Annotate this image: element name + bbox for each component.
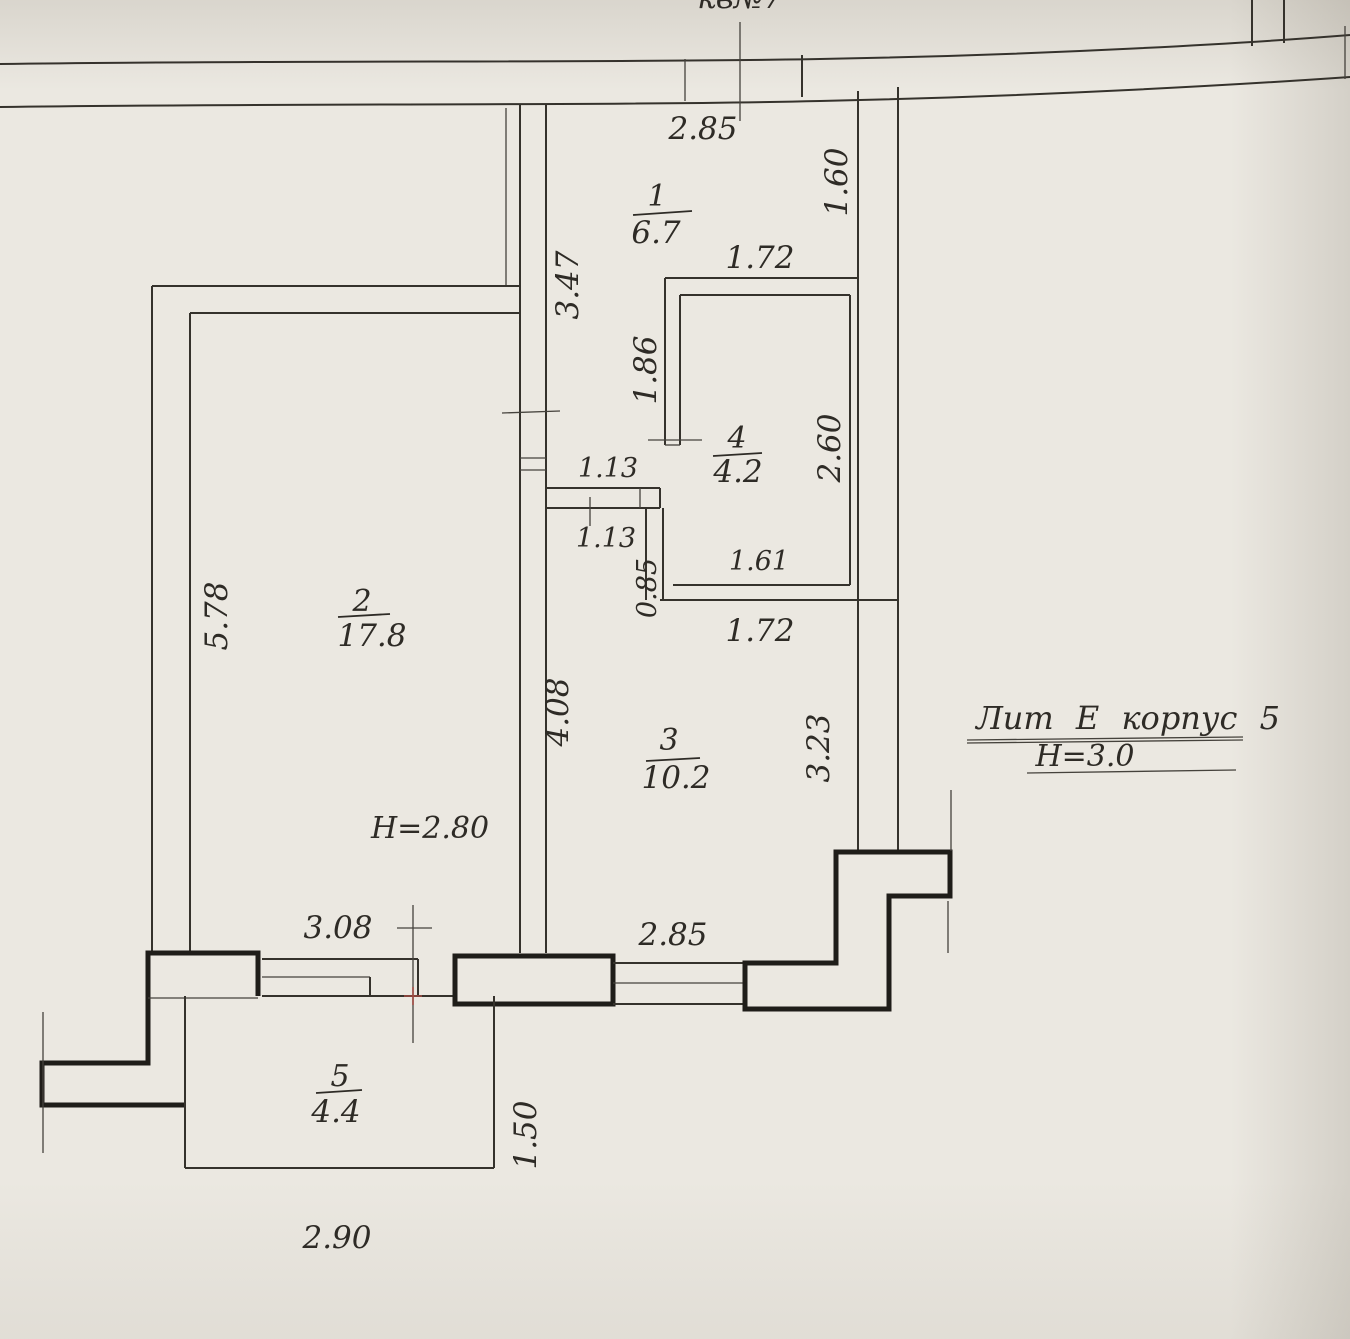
room5-area: 4.4 bbox=[310, 1094, 360, 1130]
dim-room2-left: 5.78 bbox=[199, 581, 235, 650]
room3-number: 3 bbox=[659, 723, 678, 758]
dim-balcony-right: 1.50 bbox=[508, 1100, 544, 1169]
room3-area: 10.2 bbox=[641, 760, 710, 796]
room4-area: 4.2 bbox=[712, 454, 762, 490]
dim-room4-bottom-inner: 1.61 bbox=[729, 546, 789, 577]
room1-area: 6.7 bbox=[631, 215, 681, 251]
dim-room2-bottom: 3.08 bbox=[303, 910, 372, 946]
dim-room4-bottom-outer: 1.72 bbox=[725, 613, 794, 649]
floor-plan-drawing: кв№7 2.85 1 6.7 1.60 1.72 3.47 1.86 4 4.… bbox=[0, 0, 1350, 1339]
room1-number: 1 bbox=[647, 179, 666, 214]
dim-door-width-b: 1.13 bbox=[576, 523, 636, 554]
dim-nook-wall: 0.85 bbox=[632, 558, 663, 618]
dim-door-width-a: 1.13 bbox=[578, 453, 638, 484]
dim-room4-top: 1.72 bbox=[725, 240, 794, 276]
floor-plan-scan: кв№7 2.85 1 6.7 1.60 1.72 3.47 1.86 4 4.… bbox=[0, 0, 1350, 1339]
dim-hall-left-upper: 3.47 bbox=[550, 250, 586, 319]
room2-area: 17.8 bbox=[337, 618, 406, 654]
paper-background bbox=[0, 0, 1350, 1339]
room4-number: 4 bbox=[726, 421, 746, 456]
building-title: Лит Е корпус 5 bbox=[974, 699, 1280, 737]
room2-number: 2 bbox=[351, 584, 371, 619]
dim-balcony-bottom: 2.90 bbox=[301, 1220, 371, 1256]
dim-hall-right: 1.60 bbox=[819, 147, 855, 216]
room5-number: 5 bbox=[330, 1059, 349, 1094]
apartment-number-label: кв№7 bbox=[697, 0, 783, 16]
room2-height-note: Н=2.80 bbox=[370, 811, 489, 846]
dim-room3-bottom: 2.85 bbox=[637, 917, 707, 953]
dim-top-width: 2.85 bbox=[667, 111, 737, 147]
dim-room4-right: 2.60 bbox=[812, 413, 848, 483]
dim-room3-right: 3.23 bbox=[801, 713, 837, 782]
dim-room3-left: 4.08 bbox=[540, 677, 576, 747]
dim-room4-left: 1.86 bbox=[628, 335, 664, 404]
building-height: Н=3.0 bbox=[1034, 739, 1134, 774]
